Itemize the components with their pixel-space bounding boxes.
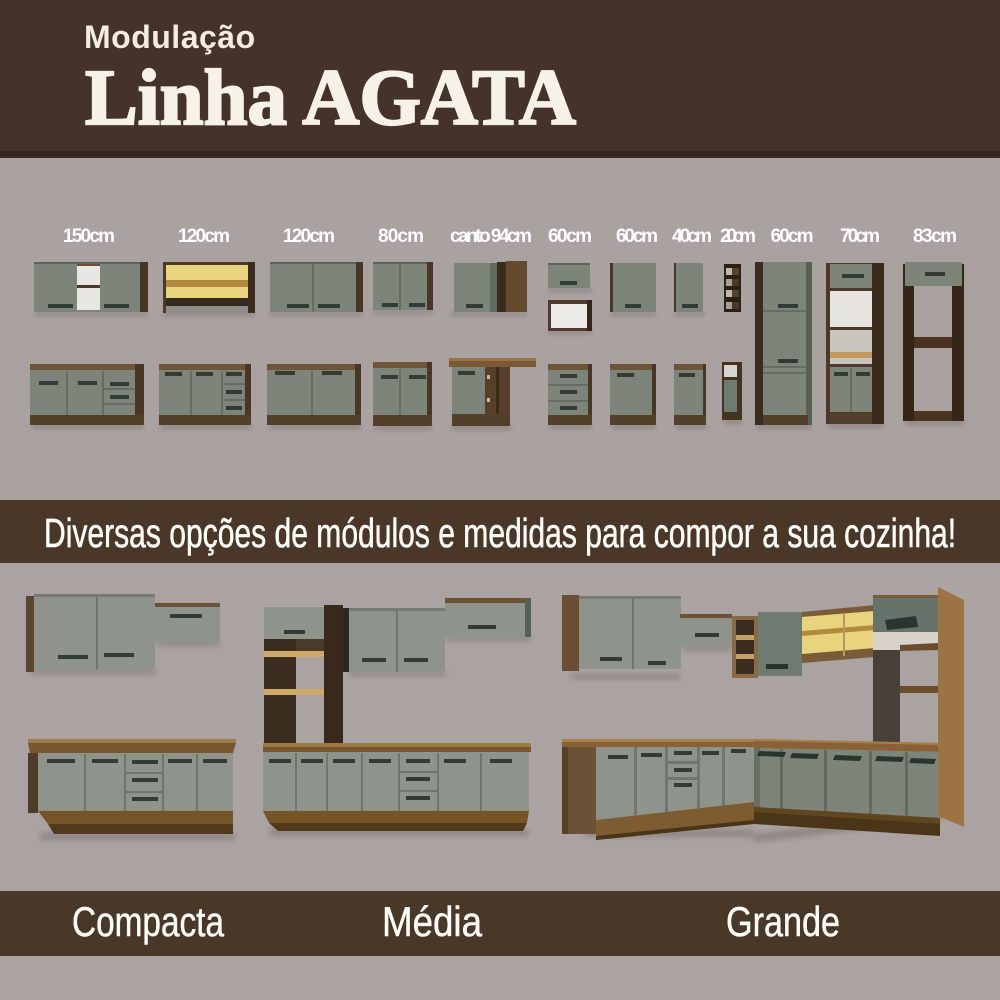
svg-text:83cm: 83cm <box>913 226 957 247</box>
svg-text:40cm: 40cm <box>672 226 712 247</box>
svg-text:20cm: 20cm <box>720 226 756 247</box>
svg-text:60cm: 60cm <box>616 226 658 247</box>
svg-text:150cm: 150cm <box>63 226 115 247</box>
svg-text:60cm: 60cm <box>548 226 592 247</box>
svg-text:80cm: 80cm <box>378 226 424 247</box>
svg-text:120cm: 120cm <box>283 226 335 247</box>
svg-text:120cm: 120cm <box>178 226 230 247</box>
svg-text:70cm: 70cm <box>840 226 880 247</box>
svg-text:canto 94cm: canto 94cm <box>450 226 532 247</box>
svg-text:60cm: 60cm <box>771 226 814 247</box>
